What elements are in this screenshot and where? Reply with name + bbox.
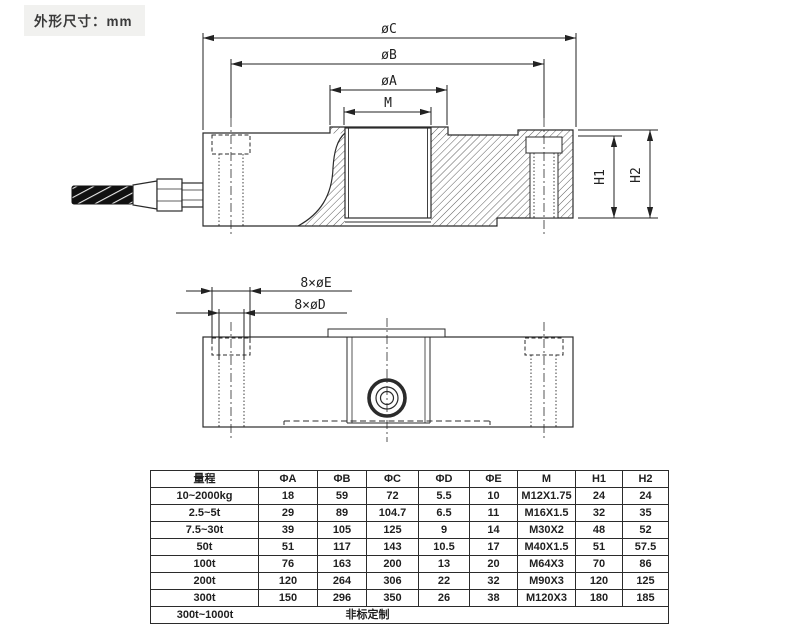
table-cell: 51 [259,539,318,556]
table-row: 7.5~30t 39 105 125 9 14 M30X2 48 52 [151,522,669,539]
table-cell: M64X3 [518,556,576,573]
table-cell: 39 [259,522,318,539]
table-cell: 143 [367,539,419,556]
table-cell: 32 [576,505,623,522]
table-cell: M16X1.5 [518,505,576,522]
table-cell: M90X3 [518,573,576,590]
table-cell: 300t [151,590,259,607]
table-cell: 296 [318,590,367,607]
table-cell: 70 [576,556,623,573]
table-cell: M40X1.5 [518,539,576,556]
page: { "page": { "title": "外形尺寸：mm" }, "color… [0,0,800,640]
table-cell: 180 [576,590,623,607]
top-dimensions: øC øB øA M [203,22,576,130]
table-cell: 264 [318,573,367,590]
dim-label-dia-c: øC [381,22,397,37]
table-header-row: 量程 ΦA ΦB ΦC ΦD ΦE M H1 H2 [151,471,669,488]
table-row: 300t 150 296 350 26 38 M120X3 180 185 [151,590,669,607]
header-dia-a: ΦA [259,471,318,488]
table-cell: 59 [318,488,367,505]
table-cell: M30X2 [518,522,576,539]
table-cell: 10~2000kg [151,488,259,505]
table-cell: 200 [367,556,419,573]
footer-range: 300t~1000t [151,607,259,623]
table-cell: 104.7 [367,505,419,522]
table-footer-row: 300t~1000t 非标定制 [151,607,669,624]
side-view [203,318,573,442]
dim-label-bolt-e: 8×øE [300,276,331,291]
load-cell-technical-drawing: øC øB øA M H1 H2 [0,0,800,465]
table-cell: 163 [318,556,367,573]
table-cell: 24 [576,488,623,505]
table-cell: 72 [367,488,419,505]
height-dimensions: H1 H2 [578,130,658,218]
table-cell: 125 [367,522,419,539]
table-cell: M12X1.75 [518,488,576,505]
table-cell: 2.5~5t [151,505,259,522]
table-cell: 10 [470,488,518,505]
header-dia-e: ΦE [470,471,518,488]
table-cell: 7.5~30t [151,522,259,539]
table-row: 10~2000kg 18 59 72 5.5 10 M12X1.75 24 24 [151,488,669,505]
table-cell: 150 [259,590,318,607]
table-cell: 5.5 [419,488,470,505]
table-cell: M120X3 [518,590,576,607]
cable-assembly [72,179,203,211]
table-cell: 17 [470,539,518,556]
table-cell: 125 [623,573,669,590]
section-view [72,118,573,234]
dim-label-thread-m: M [384,96,392,111]
table-footer-cell: 300t~1000t 非标定制 [151,607,669,624]
table-cell: 120 [259,573,318,590]
table-cell: 100t [151,556,259,573]
table-cell: 6.5 [419,505,470,522]
table-cell: 51 [576,539,623,556]
table-cell: 200t [151,573,259,590]
footer-note: 非标定制 [259,607,476,623]
table-cell: 86 [623,556,669,573]
table-row: 50t 51 117 143 10.5 17 M40X1.5 51 57.5 [151,539,669,556]
table-cell: 29 [259,505,318,522]
table-cell: 306 [367,573,419,590]
table-row: 100t 76 163 200 13 20 M64X3 70 86 [151,556,669,573]
table-cell: 14 [470,522,518,539]
table-cell: 57.5 [623,539,669,556]
dim-label-h2: H2 [629,167,644,183]
table-cell: 11 [470,505,518,522]
header-dia-c: ΦC [367,471,419,488]
table-cell: 13 [419,556,470,573]
table-row: 200t 120 264 306 22 32 M90X3 120 125 [151,573,669,590]
table-cell: 10.5 [419,539,470,556]
dim-label-dia-a: øA [381,74,397,89]
table-cell: 89 [318,505,367,522]
table-cell: 105 [318,522,367,539]
header-m: M [518,471,576,488]
table-cell: 350 [367,590,419,607]
table-cell: 76 [259,556,318,573]
table-cell: 117 [318,539,367,556]
table-cell: 20 [470,556,518,573]
dim-label-h1: H1 [593,169,608,185]
table-cell: 32 [470,573,518,590]
table-cell: 48 [576,522,623,539]
spec-table: 量程 ΦA ΦB ΦC ΦD ΦE M H1 H2 10~2000kg 18 5… [150,470,669,624]
dim-label-dia-b: øB [381,48,397,63]
table-cell: 38 [470,590,518,607]
table-row: 2.5~5t 29 89 104.7 6.5 11 M16X1.5 32 35 [151,505,669,522]
table-cell: 185 [623,590,669,607]
header-h1: H1 [576,471,623,488]
table-cell: 35 [623,505,669,522]
header-dia-d: ΦD [419,471,470,488]
table-cell: 26 [419,590,470,607]
header-range: 量程 [151,471,259,488]
header-dia-b: ΦB [318,471,367,488]
table-cell: 24 [623,488,669,505]
center-hole [345,128,431,222]
table-cell: 18 [259,488,318,505]
table-cell: 22 [419,573,470,590]
table-cell: 120 [576,573,623,590]
table-cell: 9 [419,522,470,539]
table-cell: 50t [151,539,259,556]
dim-label-bolt-d: 8×øD [294,298,325,313]
table-cell: 52 [623,522,669,539]
header-h2: H2 [623,471,669,488]
